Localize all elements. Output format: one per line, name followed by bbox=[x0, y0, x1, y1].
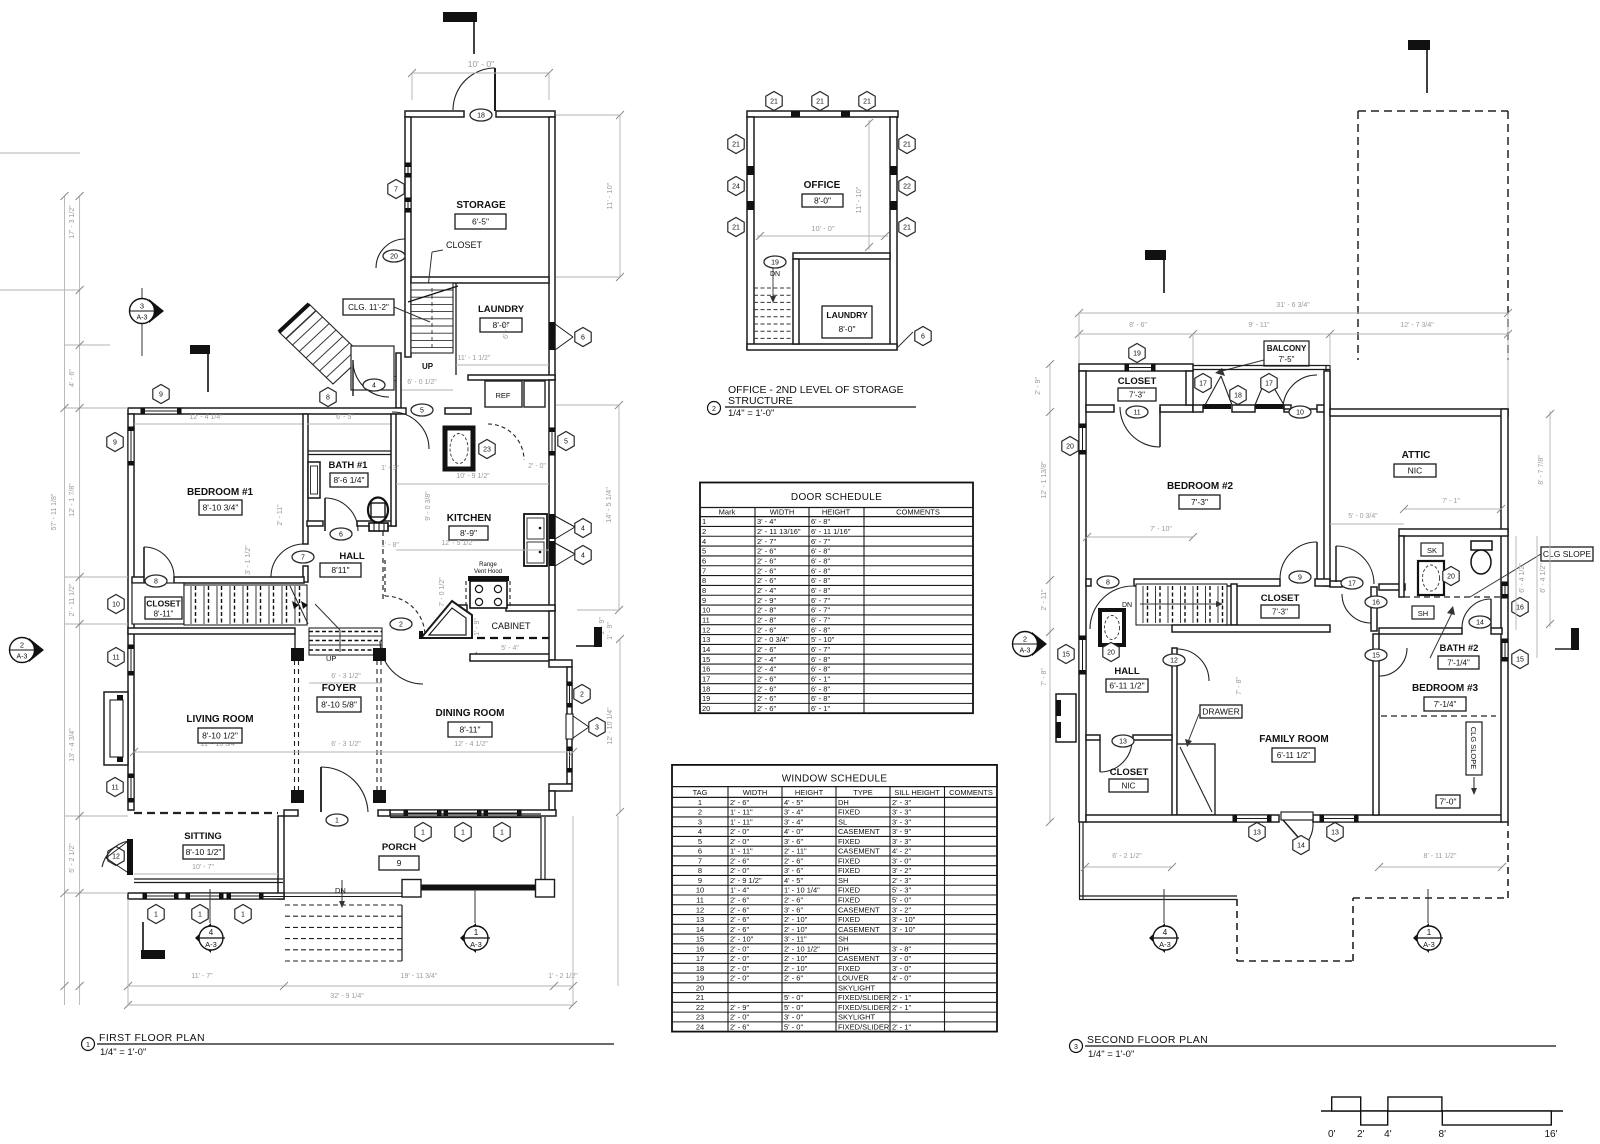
svg-text:5' - 4": 5' - 4" bbox=[501, 645, 519, 652]
svg-text:31' - 6 3/4": 31' - 6 3/4" bbox=[1276, 302, 1310, 309]
svg-text:2' - 6": 2' - 6" bbox=[784, 974, 803, 983]
svg-text:6' - 0 1/2": 6' - 0 1/2" bbox=[407, 379, 437, 386]
svg-text:OFFICE: OFFICE bbox=[804, 180, 841, 191]
svg-text:4': 4' bbox=[1384, 1129, 1392, 1140]
svg-text:2' - 0": 2' - 0" bbox=[730, 944, 749, 953]
svg-text:6' - 7": 6' - 7" bbox=[811, 645, 830, 654]
svg-text:5' - 0": 5' - 0" bbox=[784, 1003, 803, 1012]
svg-text:1' - 8": 1' - 8" bbox=[381, 542, 399, 549]
svg-text:17: 17 bbox=[1348, 581, 1356, 588]
svg-text:10' - 9 1/2": 10' - 9 1/2" bbox=[456, 473, 490, 480]
svg-text:11: 11 bbox=[111, 785, 118, 792]
svg-text:4: 4 bbox=[698, 827, 702, 836]
svg-text:8'-11": 8'-11" bbox=[154, 610, 174, 619]
svg-text:7'-3": 7'-3" bbox=[1191, 497, 1208, 507]
svg-text:6' - 8": 6' - 8" bbox=[811, 655, 830, 664]
svg-text:5: 5 bbox=[698, 837, 702, 846]
svg-text:16: 16 bbox=[696, 944, 704, 953]
svg-text:COMMENTS: COMMENTS bbox=[896, 507, 940, 516]
svg-text:BEDROOM #3: BEDROOM #3 bbox=[1412, 683, 1479, 694]
svg-text:6' - 7": 6' - 7" bbox=[811, 616, 830, 625]
svg-text:3' - 6": 3' - 6" bbox=[784, 905, 803, 914]
svg-text:2' - 0": 2' - 0" bbox=[528, 463, 546, 470]
svg-text:3' - 0": 3' - 0" bbox=[892, 964, 911, 973]
svg-text:2' - 0": 2' - 0" bbox=[730, 1013, 749, 1022]
svg-text:1: 1 bbox=[1427, 928, 1432, 937]
svg-text:FIXED: FIXED bbox=[838, 837, 861, 846]
svg-text:1/4" = 1'-0": 1/4" = 1'-0" bbox=[728, 408, 774, 419]
svg-text:2' - 11": 2' - 11" bbox=[784, 847, 807, 856]
svg-text:8'-10 3/4": 8'-10 3/4" bbox=[203, 503, 239, 513]
svg-text:BEDROOM #1: BEDROOM #1 bbox=[187, 487, 254, 498]
svg-text:FIXED: FIXED bbox=[838, 857, 861, 866]
svg-text:20: 20 bbox=[1066, 444, 1074, 451]
svg-text:HEIGHT: HEIGHT bbox=[822, 507, 851, 516]
svg-text:19: 19 bbox=[1133, 351, 1141, 358]
svg-text:3' - 2": 3' - 2" bbox=[892, 866, 911, 875]
svg-text:2: 2 bbox=[712, 406, 716, 413]
svg-text:12: 12 bbox=[1170, 658, 1178, 665]
svg-text:8: 8 bbox=[702, 576, 706, 585]
svg-text:3' - 0": 3' - 0" bbox=[784, 1013, 803, 1022]
svg-text:16': 16' bbox=[1544, 1129, 1557, 1140]
svg-text:21: 21 bbox=[863, 99, 871, 106]
svg-text:9: 9 bbox=[397, 858, 402, 868]
svg-text:2' - 10": 2' - 10" bbox=[784, 925, 808, 934]
svg-text:3' - 4": 3' - 4" bbox=[784, 808, 803, 817]
svg-text:11' - 10": 11' - 10" bbox=[854, 186, 863, 213]
svg-text:CASEMENT: CASEMENT bbox=[838, 847, 880, 856]
svg-text:Range: Range bbox=[479, 562, 497, 568]
svg-text:CLOSET: CLOSET bbox=[146, 599, 181, 609]
svg-text:5' - 2 1/2": 5' - 2 1/2" bbox=[69, 843, 76, 873]
svg-text:COMMENTS: COMMENTS bbox=[949, 788, 993, 797]
svg-text:2' - 3": 2' - 3" bbox=[892, 876, 911, 885]
svg-text:12' - 4 1/2": 12' - 4 1/2" bbox=[454, 741, 488, 748]
svg-text:6' - 8": 6' - 8" bbox=[811, 586, 830, 595]
svg-text:2' - 10": 2' - 10" bbox=[784, 954, 808, 963]
svg-text:15: 15 bbox=[1372, 653, 1380, 660]
svg-text:1: 1 bbox=[698, 798, 702, 807]
svg-text:15: 15 bbox=[696, 935, 704, 944]
svg-text:A-3: A-3 bbox=[137, 315, 148, 322]
svg-text:7: 7 bbox=[301, 555, 305, 562]
svg-text:6' - 1": 6' - 1" bbox=[811, 704, 830, 713]
svg-text:FIXED/SLIDER: FIXED/SLIDER bbox=[838, 1022, 890, 1031]
svg-text:8: 8 bbox=[702, 586, 706, 595]
svg-text:A-3: A-3 bbox=[17, 654, 28, 661]
svg-text:16: 16 bbox=[1372, 600, 1380, 607]
svg-text:HALL: HALL bbox=[1114, 666, 1140, 677]
svg-text:4' - 5": 4' - 5" bbox=[784, 798, 803, 807]
svg-text:16: 16 bbox=[1516, 605, 1524, 612]
svg-text:3' - 3": 3' - 3" bbox=[892, 837, 911, 846]
svg-text:4: 4 bbox=[581, 526, 585, 533]
svg-text:DN: DN bbox=[1122, 602, 1132, 609]
svg-text:8' - 6": 8' - 6" bbox=[1129, 322, 1147, 329]
svg-text:3: 3 bbox=[595, 725, 599, 732]
svg-text:18: 18 bbox=[696, 964, 704, 973]
svg-text:6'-11 1/2": 6'-11 1/2" bbox=[1277, 751, 1310, 760]
svg-text:19' - 11 3/4": 19' - 11 3/4" bbox=[401, 973, 438, 980]
svg-text:2' - 11 13/16": 2' - 11 13/16" bbox=[757, 527, 801, 536]
svg-text:6'-11 1/2": 6'-11 1/2" bbox=[1109, 681, 1144, 691]
svg-text:WINDOW SCHEDULE: WINDOW SCHEDULE bbox=[782, 773, 888, 784]
svg-text:5: 5 bbox=[420, 408, 424, 415]
svg-text:4' - 0": 4' - 0" bbox=[892, 974, 911, 983]
svg-text:DINING ROOM: DINING ROOM bbox=[436, 708, 505, 719]
svg-text:1: 1 bbox=[500, 830, 504, 837]
svg-text:14: 14 bbox=[702, 645, 710, 654]
svg-text:13' - 4 3/4": 13' - 4 3/4" bbox=[69, 728, 76, 762]
svg-text:2' - 6": 2' - 6" bbox=[757, 694, 776, 703]
svg-text:21: 21 bbox=[903, 142, 911, 149]
svg-text:CLOSET: CLOSET bbox=[1261, 593, 1300, 604]
svg-text:DH: DH bbox=[838, 944, 849, 953]
svg-text:6' - 9": 6' - 9" bbox=[503, 321, 510, 339]
svg-text:16: 16 bbox=[702, 665, 710, 674]
svg-text:CLOSET: CLOSET bbox=[1110, 767, 1149, 778]
svg-text:6: 6 bbox=[698, 847, 702, 856]
svg-text:1' - 10 1/4": 1' - 10 1/4" bbox=[784, 886, 820, 895]
svg-text:8'-0": 8'-0" bbox=[814, 196, 831, 206]
svg-text:DRAWER: DRAWER bbox=[1202, 707, 1239, 717]
svg-text:2' - 3": 2' - 3" bbox=[892, 798, 911, 807]
svg-text:FOYER: FOYER bbox=[322, 683, 357, 694]
svg-text:6' - 1": 6' - 1" bbox=[811, 675, 830, 684]
svg-text:1: 1 bbox=[474, 928, 479, 937]
svg-text:1: 1 bbox=[421, 830, 425, 837]
svg-text:2' - 0": 2' - 0" bbox=[730, 866, 749, 875]
svg-text:CLG. 11'-2": CLG. 11'-2" bbox=[348, 303, 389, 312]
svg-text:3' - 1 1/2": 3' - 1 1/2" bbox=[245, 545, 252, 575]
svg-text:24: 24 bbox=[696, 1022, 704, 1031]
svg-text:2' - 6": 2' - 6" bbox=[757, 684, 776, 693]
svg-text:7'-0": 7'-0" bbox=[1440, 797, 1457, 807]
svg-text:2: 2 bbox=[399, 622, 403, 629]
svg-text:3' - 11": 3' - 11" bbox=[784, 935, 807, 944]
svg-text:3' - 3": 3' - 3" bbox=[892, 817, 911, 826]
svg-text:0': 0' bbox=[1328, 1129, 1336, 1140]
svg-text:5' - 10": 5' - 10" bbox=[811, 635, 835, 644]
svg-text:5' - 0": 5' - 0" bbox=[784, 1022, 803, 1031]
svg-text:3' - 10": 3' - 10" bbox=[892, 925, 916, 934]
svg-text:2' - 6": 2' - 6" bbox=[757, 645, 776, 654]
svg-text:2' - 6": 2' - 6" bbox=[730, 925, 749, 934]
svg-text:LAUNDRY: LAUNDRY bbox=[478, 304, 525, 315]
svg-text:8'-0": 8'-0" bbox=[839, 324, 856, 334]
svg-text:21: 21 bbox=[816, 99, 824, 106]
svg-text:FIRST FLOOR PLAN: FIRST FLOOR PLAN bbox=[99, 1032, 205, 1044]
svg-text:7: 7 bbox=[394, 187, 398, 194]
svg-text:CLOSET: CLOSET bbox=[446, 240, 483, 250]
svg-text:6' - 4 1/2": 6' - 4 1/2" bbox=[1519, 563, 1526, 593]
svg-text:4: 4 bbox=[209, 928, 214, 937]
svg-text:2' - 6": 2' - 6" bbox=[757, 625, 776, 634]
svg-text:2: 2 bbox=[580, 692, 584, 699]
svg-text:6' - 7": 6' - 7" bbox=[811, 596, 830, 605]
svg-text:2' - 6": 2' - 6" bbox=[730, 915, 749, 924]
svg-text:9: 9 bbox=[113, 440, 117, 447]
svg-text:9: 9 bbox=[702, 596, 706, 605]
svg-text:CLG SLOPE: CLG SLOPE bbox=[1469, 727, 1478, 770]
svg-text:6' - 7": 6' - 7" bbox=[811, 537, 830, 546]
svg-text:STORAGE: STORAGE bbox=[456, 200, 506, 211]
svg-text:2' - 6": 2' - 6" bbox=[784, 857, 803, 866]
svg-text:2: 2 bbox=[20, 641, 24, 650]
svg-text:PORCH: PORCH bbox=[382, 842, 416, 853]
svg-text:SECOND FLOOR PLAN: SECOND FLOOR PLAN bbox=[1087, 1034, 1208, 1046]
svg-text:4: 4 bbox=[581, 553, 585, 560]
svg-text:4: 4 bbox=[1163, 928, 1168, 937]
svg-text:17' - 3 1/2": 17' - 3 1/2" bbox=[69, 205, 76, 239]
svg-text:2' - 6": 2' - 6" bbox=[730, 1022, 749, 1031]
svg-text:24: 24 bbox=[732, 184, 740, 191]
svg-text:DN: DN bbox=[770, 271, 780, 278]
svg-text:FIXED/SLIDER: FIXED/SLIDER bbox=[838, 993, 890, 1002]
svg-text:20: 20 bbox=[1447, 574, 1455, 581]
svg-text:NIC: NIC bbox=[1122, 782, 1136, 791]
svg-text:7'-5": 7'-5" bbox=[1279, 355, 1295, 364]
svg-text:A-3: A-3 bbox=[205, 940, 217, 949]
svg-text:7' - 0 1/2": 7' - 0 1/2" bbox=[439, 577, 446, 607]
svg-text:FIXED: FIXED bbox=[838, 886, 861, 895]
svg-text:32' - 9 1/4": 32' - 9 1/4" bbox=[330, 993, 364, 1000]
svg-text:SKYLIGHT: SKYLIGHT bbox=[838, 1013, 876, 1022]
svg-text:5' - 0": 5' - 0" bbox=[892, 896, 911, 905]
svg-text:12' - 7 3/4": 12' - 7 3/4" bbox=[1400, 322, 1434, 329]
svg-text:Vent Hood: Vent Hood bbox=[474, 569, 502, 575]
svg-text:21: 21 bbox=[696, 993, 704, 1002]
svg-text:15: 15 bbox=[1516, 657, 1524, 664]
svg-text:5' - 0 3/4": 5' - 0 3/4" bbox=[1348, 513, 1378, 520]
svg-text:6' - 11 1/16": 6' - 11 1/16" bbox=[811, 527, 851, 536]
svg-text:1: 1 bbox=[461, 830, 465, 837]
svg-text:7' - 10": 7' - 10" bbox=[1150, 526, 1172, 533]
svg-text:STRUCTURE: STRUCTURE bbox=[728, 395, 793, 407]
svg-text:14' - 5 1/4": 14' - 5 1/4" bbox=[604, 487, 613, 523]
svg-text:7: 7 bbox=[698, 857, 702, 866]
svg-text:2' - 0": 2' - 0" bbox=[730, 827, 749, 836]
svg-text:3' - 0": 3' - 0" bbox=[892, 857, 911, 866]
svg-text:6: 6 bbox=[702, 557, 706, 566]
svg-text:14: 14 bbox=[696, 925, 704, 934]
svg-text:SITTING: SITTING bbox=[184, 831, 221, 842]
svg-text:2' - 10": 2' - 10" bbox=[730, 935, 754, 944]
svg-text:1/4" = 1'-0": 1/4" = 1'-0" bbox=[1088, 1049, 1134, 1060]
svg-text:SH: SH bbox=[838, 876, 848, 885]
svg-text:2' - 6": 2' - 6" bbox=[757, 547, 776, 556]
svg-text:19: 19 bbox=[696, 974, 704, 983]
svg-text:ATTIC: ATTIC bbox=[1402, 450, 1431, 461]
svg-text:2' - 8": 2' - 8" bbox=[757, 616, 776, 625]
svg-text:2' - 6": 2' - 6" bbox=[730, 905, 749, 914]
svg-text:21: 21 bbox=[732, 142, 740, 149]
svg-text:CLOSET: CLOSET bbox=[1118, 376, 1157, 387]
svg-text:7' - 1": 7' - 1" bbox=[1442, 498, 1460, 505]
svg-text:4: 4 bbox=[372, 383, 376, 390]
svg-text:1' - 11": 1' - 11" bbox=[730, 847, 753, 856]
svg-text:KITCHEN: KITCHEN bbox=[447, 513, 491, 524]
svg-text:19: 19 bbox=[771, 260, 779, 267]
svg-text:2' - 0": 2' - 0" bbox=[730, 954, 749, 963]
svg-text:A-3: A-3 bbox=[1020, 648, 1031, 655]
svg-text:2' - 9": 2' - 9" bbox=[757, 596, 776, 605]
svg-text:2' - 6": 2' - 6" bbox=[730, 857, 749, 866]
svg-text:13: 13 bbox=[1119, 739, 1127, 746]
svg-text:5: 5 bbox=[564, 439, 568, 446]
svg-text:1' - 4": 1' - 4" bbox=[730, 886, 749, 895]
svg-text:10: 10 bbox=[112, 602, 120, 609]
svg-text:SKYLIGHT: SKYLIGHT bbox=[838, 983, 876, 992]
svg-text:12: 12 bbox=[702, 625, 710, 634]
svg-text:23: 23 bbox=[696, 1013, 704, 1022]
svg-text:LIVING ROOM: LIVING ROOM bbox=[186, 714, 253, 725]
svg-text:2' - 6": 2' - 6" bbox=[784, 896, 803, 905]
svg-text:19: 19 bbox=[702, 694, 710, 703]
svg-text:8'-11": 8'-11" bbox=[459, 725, 480, 735]
svg-text:2' - 9": 2' - 9" bbox=[730, 1003, 749, 1012]
svg-text:7: 7 bbox=[702, 566, 706, 575]
svg-text:9' - 0 3/8": 9' - 0 3/8" bbox=[425, 491, 432, 521]
svg-text:8: 8 bbox=[1106, 580, 1110, 587]
svg-text:6' - 8": 6' - 8" bbox=[811, 517, 830, 526]
svg-text:NIC: NIC bbox=[1408, 466, 1423, 476]
svg-text:6: 6 bbox=[339, 532, 343, 539]
svg-text:1' - 11": 1' - 11" bbox=[730, 817, 753, 826]
svg-text:2' - 1": 2' - 1" bbox=[892, 1003, 911, 1012]
svg-text:FIXED: FIXED bbox=[838, 896, 861, 905]
svg-text:3' - 3": 3' - 3" bbox=[892, 808, 911, 817]
svg-text:6: 6 bbox=[581, 335, 585, 342]
svg-text:2' - 0": 2' - 0" bbox=[730, 964, 749, 973]
svg-text:3' - 2": 3' - 2" bbox=[892, 905, 911, 914]
svg-text:SILL HEIGHT: SILL HEIGHT bbox=[894, 788, 940, 797]
svg-text:8' - 7 7/8": 8' - 7 7/8" bbox=[1538, 455, 1545, 485]
svg-text:2' - 9": 2' - 9" bbox=[1035, 377, 1042, 395]
svg-text:9' - 11": 9' - 11" bbox=[1248, 322, 1270, 329]
svg-text:11' - 10": 11' - 10" bbox=[605, 182, 614, 209]
svg-text:FIXED: FIXED bbox=[838, 915, 861, 924]
svg-text:13: 13 bbox=[1253, 830, 1261, 837]
svg-text:22: 22 bbox=[903, 184, 911, 191]
svg-text:17: 17 bbox=[696, 954, 704, 963]
svg-text:2' - 10": 2' - 10" bbox=[784, 964, 808, 973]
svg-text:6' - 7": 6' - 7" bbox=[811, 606, 830, 615]
svg-text:10: 10 bbox=[702, 606, 710, 615]
svg-text:12: 12 bbox=[112, 854, 120, 861]
svg-text:2' - 6": 2' - 6" bbox=[757, 704, 776, 713]
svg-text:3' - 6": 3' - 6" bbox=[784, 866, 803, 875]
svg-text:18: 18 bbox=[1234, 393, 1242, 400]
svg-text:1' - 3": 1' - 3" bbox=[381, 465, 399, 472]
svg-text:10' - 0": 10' - 0" bbox=[811, 224, 835, 233]
svg-text:18: 18 bbox=[702, 684, 710, 693]
svg-text:7' - 8": 7' - 8" bbox=[1041, 668, 1048, 686]
svg-text:11: 11 bbox=[702, 616, 710, 625]
svg-text:15: 15 bbox=[1062, 652, 1070, 659]
svg-text:DOOR SCHEDULE: DOOR SCHEDULE bbox=[791, 492, 882, 503]
svg-text:2' - 10": 2' - 10" bbox=[784, 915, 808, 924]
svg-text:2' - 11": 2' - 11" bbox=[1041, 589, 1048, 611]
svg-text:SH: SH bbox=[1418, 609, 1428, 618]
svg-text:20: 20 bbox=[702, 704, 710, 713]
svg-text:57' - 11 1/8": 57' - 11 1/8" bbox=[51, 493, 58, 530]
svg-text:13: 13 bbox=[1331, 830, 1339, 837]
svg-text:3' - 10": 3' - 10" bbox=[892, 915, 916, 924]
svg-text:1: 1 bbox=[702, 517, 706, 526]
svg-text:2' - 6": 2' - 6" bbox=[757, 675, 776, 684]
svg-text:UP: UP bbox=[326, 654, 336, 663]
svg-text:CASEMENT: CASEMENT bbox=[838, 827, 880, 836]
svg-text:2: 2 bbox=[1023, 635, 1027, 644]
svg-text:6'-5": 6'-5" bbox=[472, 217, 489, 227]
svg-text:9: 9 bbox=[698, 876, 702, 885]
svg-text:CABINET: CABINET bbox=[491, 621, 531, 631]
svg-text:18: 18 bbox=[477, 113, 485, 120]
svg-text:LOUVER: LOUVER bbox=[838, 974, 869, 983]
svg-text:1' - 2 1/2": 1' - 2 1/2" bbox=[548, 973, 578, 980]
svg-text:1: 1 bbox=[335, 818, 339, 825]
svg-text:5: 5 bbox=[702, 547, 706, 556]
svg-text:20: 20 bbox=[696, 983, 704, 992]
svg-text:SH: SH bbox=[838, 935, 848, 944]
svg-text:20: 20 bbox=[1107, 650, 1115, 657]
svg-text:6' - 8": 6' - 8" bbox=[811, 694, 830, 703]
svg-text:1: 1 bbox=[198, 912, 202, 919]
svg-text:12' - 1 7/8": 12' - 1 7/8" bbox=[69, 483, 76, 517]
svg-text:4' - 2": 4' - 2" bbox=[892, 847, 911, 856]
svg-text:2' - 10 1/2": 2' - 10 1/2" bbox=[784, 944, 820, 953]
svg-text:12' - 10 1/4": 12' - 10 1/4" bbox=[607, 707, 614, 745]
svg-text:6' - 2 1/2": 6' - 2 1/2" bbox=[1112, 853, 1142, 860]
svg-text:7' - 8": 7' - 8" bbox=[1236, 677, 1243, 695]
svg-text:6' - 8": 6' - 8" bbox=[811, 665, 830, 674]
svg-text:3' - 8": 3' - 8" bbox=[892, 944, 911, 953]
svg-text:6' - 4 1/2": 6' - 4 1/2" bbox=[1540, 563, 1547, 593]
svg-text:Mark: Mark bbox=[719, 507, 736, 516]
svg-text:21: 21 bbox=[770, 99, 778, 106]
svg-text:4: 4 bbox=[702, 537, 706, 546]
svg-text:12' - 1 13/8": 12' - 1 13/8" bbox=[1041, 461, 1048, 499]
svg-text:6' - 8": 6' - 8" bbox=[811, 625, 830, 634]
svg-text:3: 3 bbox=[140, 302, 144, 311]
svg-text:FIXED: FIXED bbox=[838, 866, 861, 875]
svg-text:8'11": 8'11" bbox=[331, 565, 349, 575]
svg-text:DH: DH bbox=[838, 798, 849, 807]
svg-text:2' - 0": 2' - 0" bbox=[730, 837, 749, 846]
svg-text:FIXED: FIXED bbox=[838, 808, 861, 817]
svg-text:8'-6 1/4": 8'-6 1/4" bbox=[333, 475, 364, 485]
svg-text:3' - 6": 3' - 6" bbox=[784, 837, 803, 846]
svg-text:9: 9 bbox=[159, 392, 163, 399]
svg-text:1' - 9": 1' - 9" bbox=[607, 622, 614, 640]
svg-text:10' - 7": 10' - 7" bbox=[192, 864, 214, 871]
svg-text:1: 1 bbox=[154, 912, 158, 919]
svg-text:FAMILY ROOM: FAMILY ROOM bbox=[1259, 734, 1328, 745]
svg-text:2: 2 bbox=[702, 527, 706, 536]
svg-text:12: 12 bbox=[696, 905, 704, 914]
svg-text:17: 17 bbox=[1199, 381, 1207, 388]
svg-text:22: 22 bbox=[696, 1003, 704, 1012]
svg-text:14: 14 bbox=[1476, 620, 1484, 627]
svg-text:11: 11 bbox=[1133, 410, 1140, 417]
svg-text:5' - 3": 5' - 3" bbox=[892, 886, 911, 895]
svg-text:8'-10 5/8": 8'-10 5/8" bbox=[321, 700, 357, 710]
svg-text:TYPE: TYPE bbox=[853, 788, 873, 797]
svg-text:15: 15 bbox=[702, 655, 710, 664]
svg-text:13: 13 bbox=[702, 635, 710, 644]
